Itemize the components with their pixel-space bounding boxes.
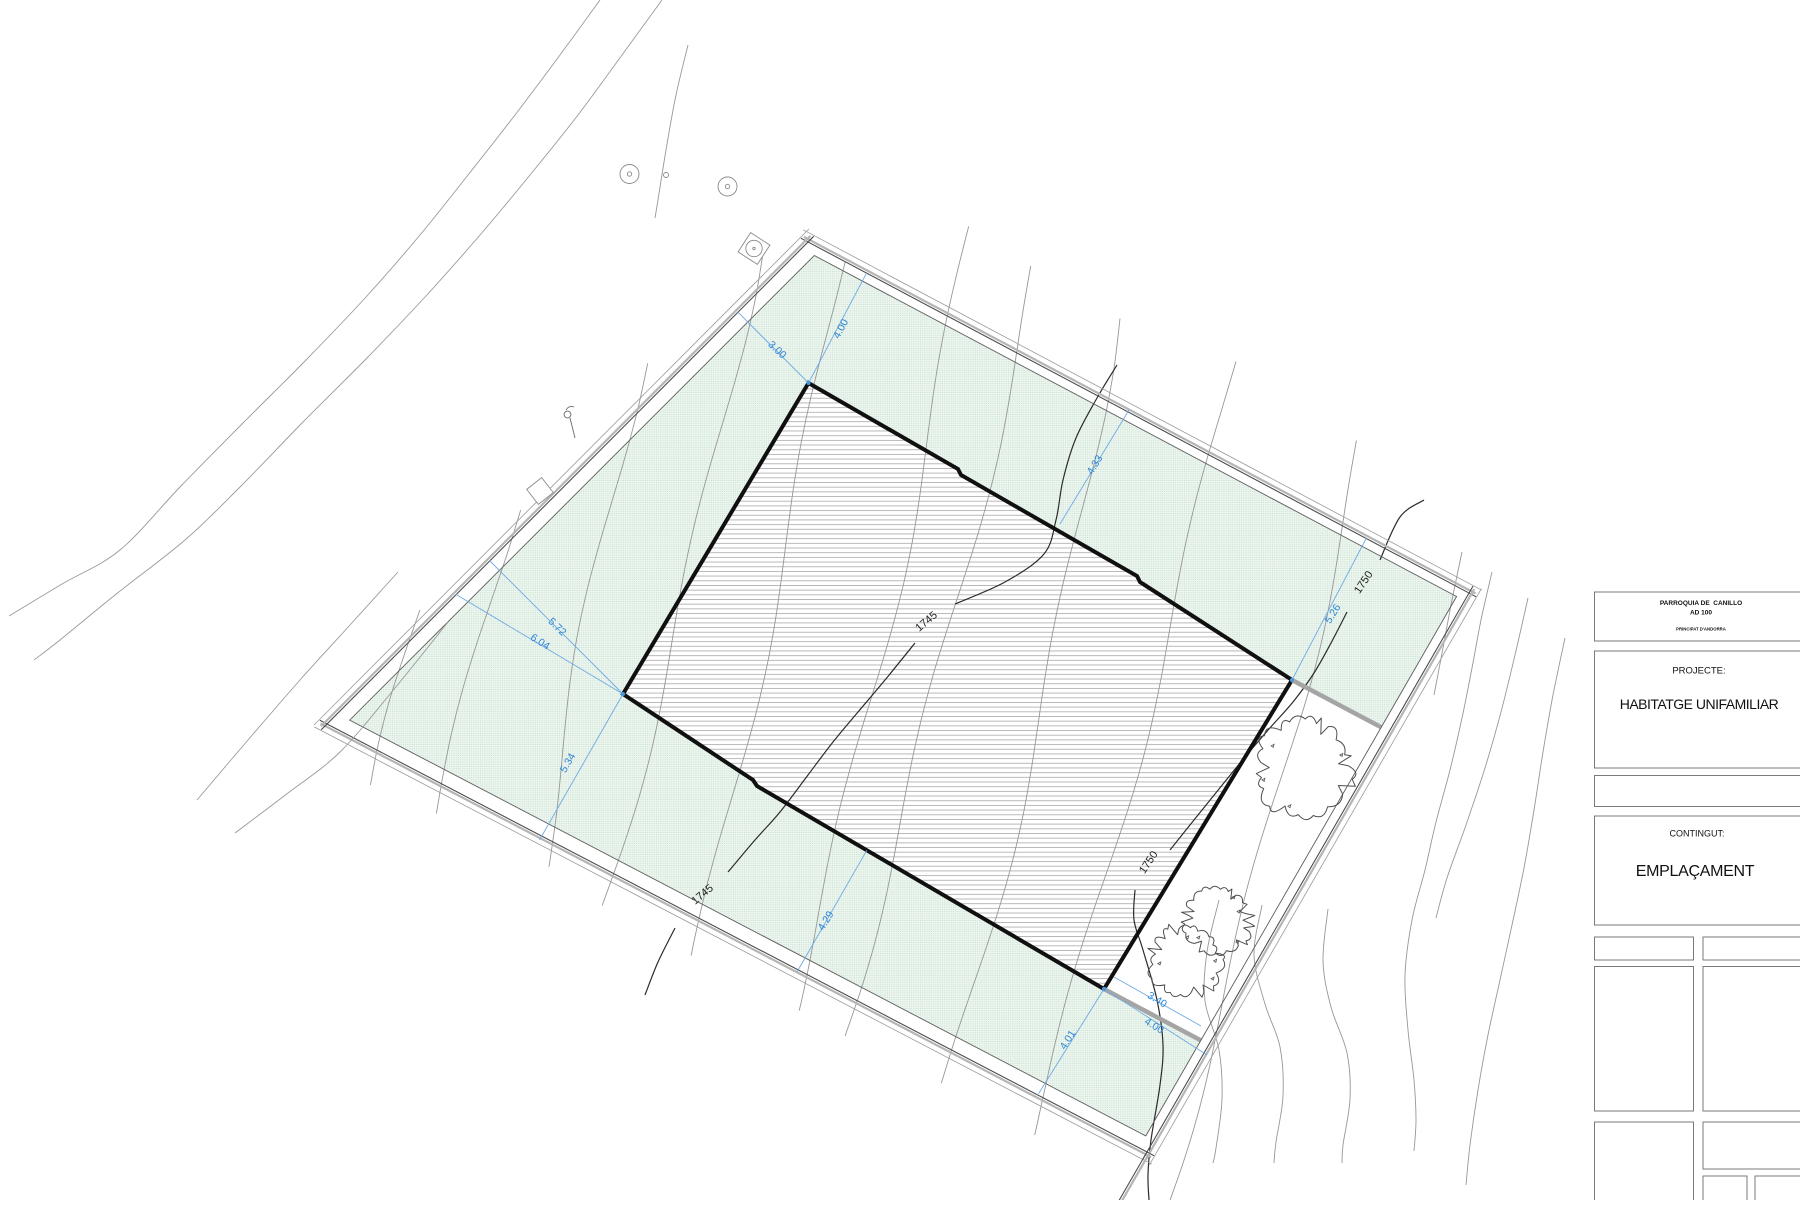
svg-text:CONTINGUT:: CONTINGUT:	[1670, 829, 1725, 839]
svg-text:HABITATGE UNIFAMILIAR: HABITATGE UNIFAMILIAR	[1620, 696, 1779, 712]
svg-text:PROJECTE:: PROJECTE:	[1672, 666, 1725, 677]
svg-text:AD 100: AD 100	[1690, 610, 1712, 617]
svg-text:PARROQUIA DE CANILLO: PARROQUIA DE CANILLO	[1660, 600, 1742, 607]
svg-text:EMPLAÇAMENT: EMPLAÇAMENT	[1636, 863, 1755, 880]
svg-text:PRINCIPAT D'ANDORRA: PRINCIPAT D'ANDORRA	[1676, 627, 1726, 632]
